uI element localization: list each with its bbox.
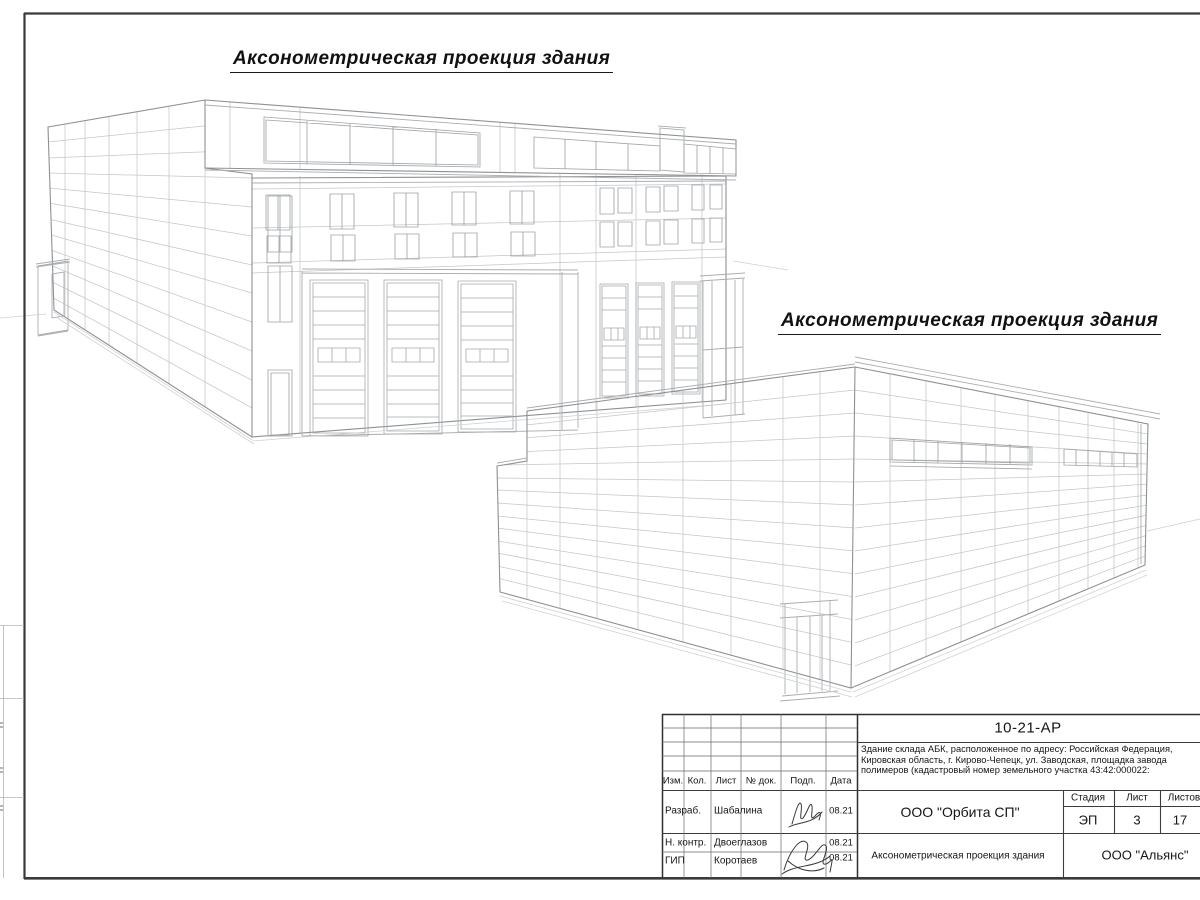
date-gip: 08.21	[829, 853, 853, 864]
name-nkontr: Двоеглазов	[714, 838, 767, 849]
header-izm: Изм.	[663, 776, 683, 787]
contractor-company: ООО "Альянс"	[1102, 848, 1189, 863]
sheet-title: Аксонометрическая проекция здания	[871, 851, 1044, 862]
design-company: ООО "Орбита СП"	[900, 804, 1019, 820]
building-2-window-strips	[890, 438, 1137, 469]
sheet-number: 3	[1133, 813, 1140, 828]
role-nkontr: Н. контр.	[665, 838, 706, 849]
project-description-line: полимеров (кадастровый номер земельного …	[861, 765, 1200, 776]
role-razrab: Разраб.	[665, 806, 701, 817]
sheets-label: Листов	[1168, 793, 1200, 804]
stage-label: Стадия	[1071, 793, 1105, 804]
project-description-line: Кировская область, г. Кирово-Чепецк, ул.…	[861, 755, 1200, 766]
name-gip: Коротаев	[714, 856, 757, 867]
date-nkontr: 08.21	[829, 838, 853, 849]
name-razrab: Шабалина	[714, 806, 762, 817]
stage-value: ЭП	[1079, 813, 1098, 828]
sheet-margin-column	[0, 625, 24, 878]
header-data: Дата	[830, 776, 851, 787]
building-1-ground-lines	[0, 261, 788, 444]
sheets-total: 17	[1173, 813, 1187, 828]
role-gip: ГИП	[665, 856, 685, 867]
header-doc: № док.	[746, 776, 776, 787]
view-title-1: Аксонометрическая проекция здания	[230, 48, 613, 73]
date-razrab: 08.21	[829, 806, 853, 817]
building-2-ground-lines	[500, 519, 1200, 697]
building-1-axonometric-drawing	[0, 95, 788, 445]
sheet-label: Лист	[1126, 793, 1148, 804]
signature-razrab	[789, 803, 822, 827]
project-description: Здание склада АБК, расположенное по адре…	[861, 744, 1200, 776]
signature-gip	[782, 841, 832, 874]
project-description-line: Здание склада АБК, расположенное по адре…	[861, 744, 1200, 755]
view-title-2: Аксонометрическая проекция здания	[778, 310, 1161, 335]
building-2-axonometric-drawing	[497, 357, 1200, 701]
header-kol: Кол.	[688, 776, 707, 787]
header-list: Лист	[716, 776, 737, 787]
document-number: 10-21-АР	[994, 720, 1061, 737]
drawing-sheet: { "drawing_titles": { "left": "Аксономет…	[0, 0, 1200, 900]
header-podp: Подп.	[790, 776, 815, 787]
